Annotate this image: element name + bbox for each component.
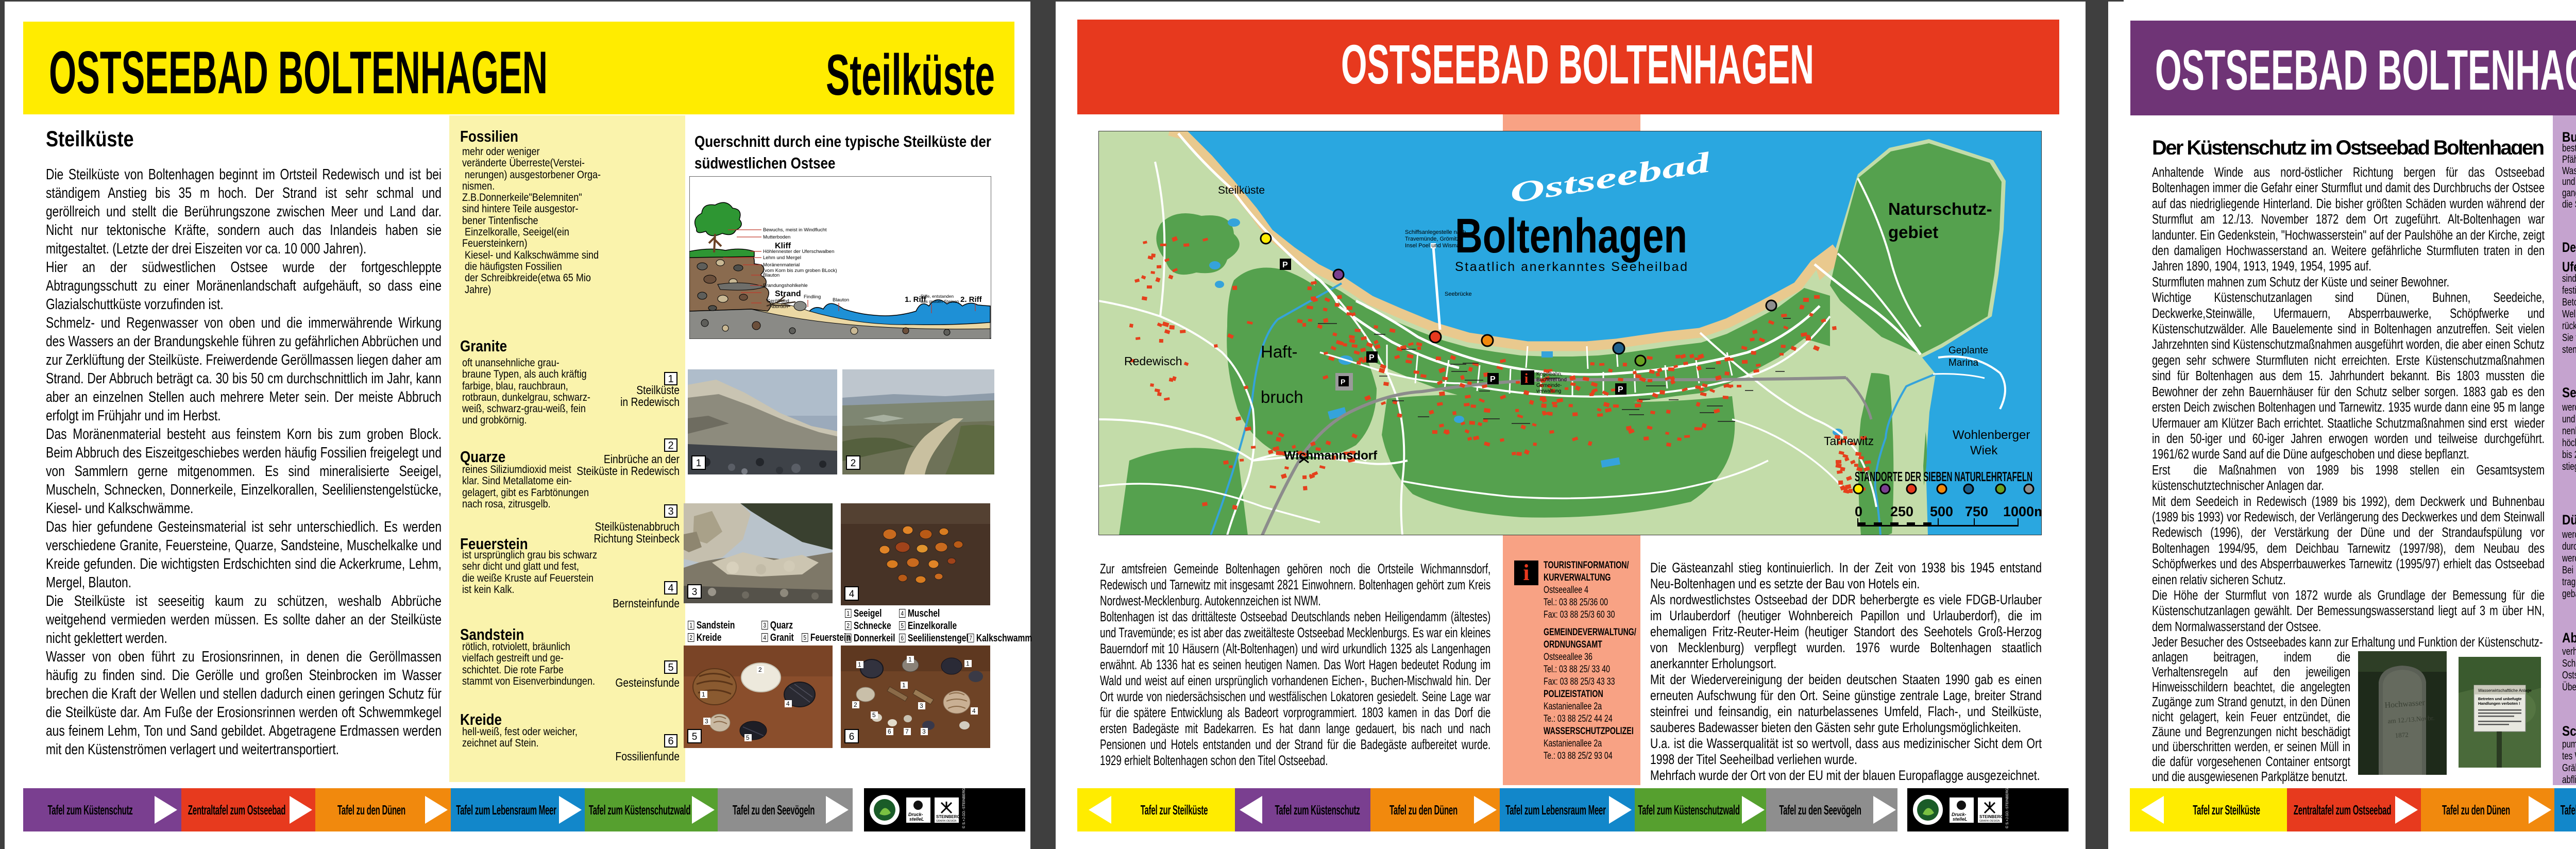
svg-text:Wasserwirtschaftliche Anlage: Wasserwirtschaftliche Anlage bbox=[2478, 688, 2532, 693]
svg-text:P: P bbox=[1369, 353, 1375, 362]
svg-text:1000m: 1000m bbox=[2003, 504, 2042, 519]
svg-text:STEINBERG: STEINBERG bbox=[936, 814, 960, 819]
svg-text:4: 4 bbox=[972, 707, 976, 715]
svg-text:Gemeinde-: Gemeinde- bbox=[1536, 383, 1562, 388]
svg-text:Findling: Findling bbox=[804, 294, 821, 300]
svg-text:5: 5 bbox=[746, 734, 750, 741]
svg-text:Bücherei und: Bücherei und bbox=[1536, 377, 1567, 383]
svg-text:7: 7 bbox=[905, 728, 909, 735]
svg-text:4: 4 bbox=[849, 589, 855, 600]
svg-text:Moränenmaterial: Moränenmaterial bbox=[763, 262, 800, 268]
svg-text:Steilküste: Steilküste bbox=[826, 43, 995, 107]
svg-text:verwaltung: verwaltung bbox=[1536, 388, 1561, 394]
svg-text:6: 6 bbox=[888, 728, 891, 735]
svg-text:Steilküste: Steilküste bbox=[1218, 184, 1265, 196]
svg-text:stelleL: stelleL bbox=[1953, 817, 1968, 822]
svg-text:OSTSEEBAD BOLTENHAGEN: OSTSEEBAD BOLTENHAGEN bbox=[2155, 39, 2576, 102]
svg-text:1: 1 bbox=[696, 458, 702, 469]
svg-text:OSTSEEBAD BOLTENHAGEN: OSTSEEBAD BOLTENHAGEN bbox=[49, 39, 548, 106]
svg-text:Brandungshohlkehle: Brandungshohlkehle bbox=[763, 283, 808, 288]
svg-text:© S.+J.GD.-STEINBERG: © S.+J.GD.-STEINBERG bbox=[2005, 788, 2009, 828]
svg-text:Tarnewitz: Tarnewitz bbox=[1824, 434, 1874, 448]
svg-text:250: 250 bbox=[1890, 504, 1913, 519]
svg-text:3: 3 bbox=[692, 587, 698, 598]
svg-text:Geplante: Geplante bbox=[1948, 345, 1988, 356]
svg-text:Redewisch: Redewisch bbox=[1124, 354, 1182, 368]
svg-text:stelleL: stelleL bbox=[909, 817, 924, 822]
svg-text:Der Küstenschutz im Ostseebad: Der Küstenschutz im Ostseebad Boltenhage… bbox=[2152, 137, 2545, 155]
svg-text:2: 2 bbox=[854, 701, 857, 708]
svg-text:Blauton: Blauton bbox=[833, 297, 849, 303]
svg-text:2: 2 bbox=[758, 666, 762, 673]
svg-text:Wiek: Wiek bbox=[1970, 444, 1998, 457]
svg-text:3: 3 bbox=[922, 728, 926, 735]
svg-text:1: 1 bbox=[858, 661, 861, 668]
svg-text:GRAFIK-DESIGN: GRAFIK-DESIGN bbox=[1979, 820, 2000, 823]
svg-text:bruch: bruch bbox=[1261, 387, 1303, 406]
svg-text:Travemünde, Grömitz: Travemünde, Grömitz bbox=[1405, 236, 1460, 242]
svg-text:Lehm und Mergel: Lehm und Mergel bbox=[763, 255, 801, 261]
svg-text:Handlungen verboten !: Handlungen verboten ! bbox=[2478, 701, 2520, 706]
svg-text:2: 2 bbox=[851, 458, 856, 469]
svg-text:aus großen Steinen: aus großen Steinen bbox=[921, 299, 959, 304]
svg-text:Haft-: Haft- bbox=[1261, 342, 1298, 361]
svg-text:2. Riff: 2. Riff bbox=[960, 295, 982, 304]
svg-text:P: P bbox=[1618, 385, 1623, 394]
svg-text:3: 3 bbox=[705, 718, 708, 725]
svg-text:5: 5 bbox=[692, 732, 698, 742]
svg-text:Kegelbahn,: Kegelbahn, bbox=[1536, 371, 1563, 377]
svg-text:P: P bbox=[1490, 375, 1496, 384]
svg-text:Riffe, entstanden: Riffe, entstanden bbox=[921, 294, 954, 299]
svg-text:6: 6 bbox=[849, 732, 855, 742]
svg-text:1: 1 bbox=[902, 682, 906, 689]
svg-text:i: i bbox=[1524, 371, 1528, 386]
svg-text:P: P bbox=[1341, 378, 1345, 386]
svg-text:gebiet: gebiet bbox=[1888, 223, 1938, 242]
svg-text:© S.+J.GD.-STEINBERG: © S.+J.GD.-STEINBERG bbox=[962, 788, 966, 828]
svg-text:5: 5 bbox=[872, 711, 876, 719]
svg-text:1: 1 bbox=[702, 691, 705, 698]
svg-text:P: P bbox=[1282, 261, 1288, 269]
svg-text:1: 1 bbox=[908, 656, 912, 663]
svg-text:OSTSEEBAD BOLTENHAGEN: OSTSEEBAD BOLTENHAGEN bbox=[1341, 33, 1814, 95]
svg-text:3: 3 bbox=[920, 702, 923, 709]
svg-text:STEINBERG: STEINBERG bbox=[1979, 814, 2004, 819]
svg-text:Strand: Strand bbox=[775, 290, 801, 298]
svg-text:Betreten und unbefugte: Betreten und unbefugte bbox=[2478, 697, 2522, 701]
svg-text:Boltenhagen: Boltenhagen bbox=[1455, 209, 1687, 263]
svg-text:Wohlenberger: Wohlenberger bbox=[1953, 428, 2030, 442]
svg-text:STANDORTE DER SIEBEN NATURLEHR: STANDORTE DER SIEBEN NATURLEHRTAFELN bbox=[1855, 469, 2032, 484]
svg-text:1: 1 bbox=[966, 660, 970, 667]
svg-text:Marina: Marina bbox=[1948, 358, 1979, 368]
svg-text:Seebrücke: Seebrücke bbox=[1445, 291, 1472, 297]
svg-text:Staatlich anerkanntes Seeheilb: Staatlich anerkanntes Seeheilbad bbox=[1455, 260, 1687, 274]
svg-text:4: 4 bbox=[786, 700, 790, 707]
svg-text:Blauton: Blauton bbox=[763, 273, 779, 278]
svg-text:500: 500 bbox=[1930, 504, 1953, 519]
svg-text:1872: 1872 bbox=[2395, 731, 2409, 739]
svg-text:Insel Poel und Wismar: Insel Poel und Wismar bbox=[1405, 243, 1462, 249]
svg-text:Mutterboden: Mutterboden bbox=[763, 234, 790, 240]
svg-text:Bewuchs, meist in Windflucht: Bewuchs, meist in Windflucht bbox=[763, 227, 827, 233]
svg-text:GRAFIK-DESIGN: GRAFIK-DESIGN bbox=[936, 820, 957, 823]
svg-text:Naturschutz-: Naturschutz- bbox=[1888, 199, 1992, 218]
svg-text:750: 750 bbox=[1965, 504, 1988, 519]
svg-text:0: 0 bbox=[1855, 504, 1862, 519]
svg-text:Höhlennester der Uferschwalben: Höhlennester der Uferschwalben bbox=[763, 249, 834, 254]
svg-text:Wichmannsdorf: Wichmannsdorf bbox=[1284, 449, 1378, 463]
